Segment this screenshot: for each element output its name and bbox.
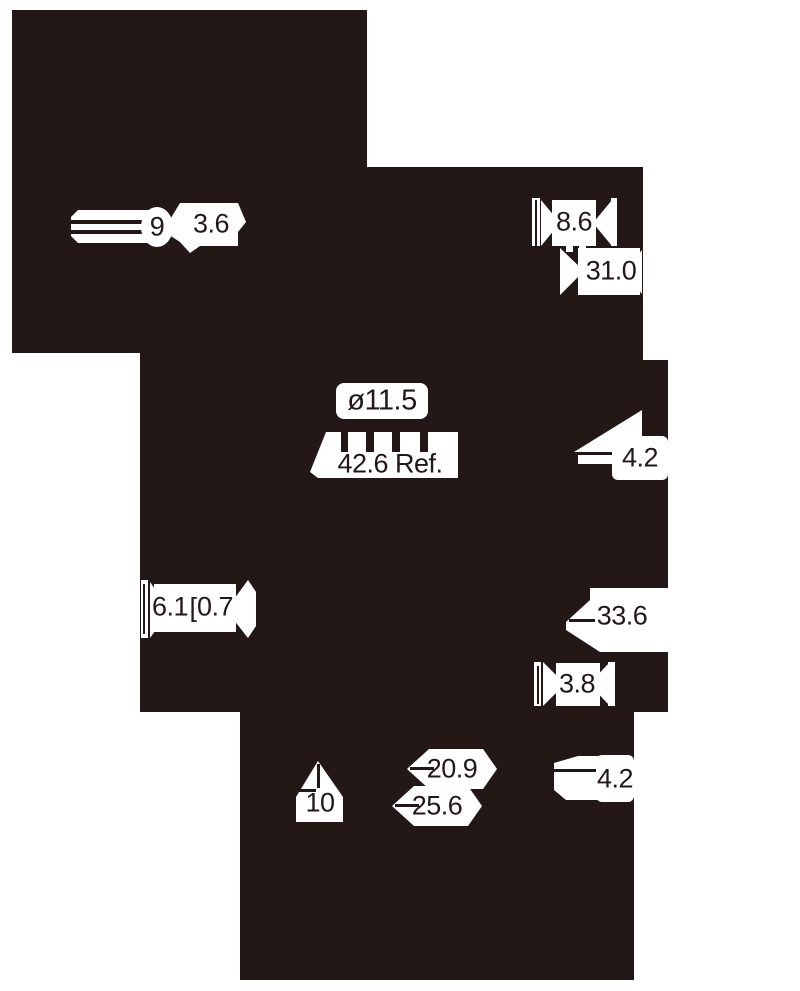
dimension-line <box>554 769 602 772</box>
dim-pin-diameter: 3.6 <box>193 211 229 238</box>
dim-shaft-diameter: 3.8 <box>559 671 595 698</box>
arrow-shaft-line <box>317 764 320 788</box>
dim-body-diameter: ø11.5 <box>347 387 417 416</box>
extension-line <box>537 666 539 704</box>
dim-overall-length: 42.6 Ref. <box>337 451 442 478</box>
extension-line <box>535 200 537 246</box>
dim-left-bracket: [ <box>189 595 196 622</box>
dim-base-height: 10 <box>305 790 334 817</box>
drawing-silhouette <box>12 10 668 980</box>
dim-tip-length: 4.2 <box>597 766 633 793</box>
drawing-canvas <box>0 0 800 991</box>
dim-left-gap: 6.1 <box>152 594 188 621</box>
dim-plug-length: 31.0 <box>586 258 637 285</box>
halo-shape <box>554 756 602 800</box>
dim-left-offset: 0.7 <box>197 594 233 621</box>
dim-pin-length: 9 <box>150 214 165 241</box>
drawing-page: 9 3.6 8.6 31.0 ø11.5 42.6 Ref. 4.2 6.1 [… <box>0 0 800 991</box>
extension-line-halo <box>611 198 617 246</box>
extension-line <box>143 584 145 634</box>
dim-inner-width: 20.9 <box>427 756 478 783</box>
dim-outer-width: 25.6 <box>412 793 463 820</box>
dim-plug-width: 8.6 <box>556 209 592 236</box>
dim-shaft-length: 33.6 <box>597 603 648 630</box>
extension-line-halo <box>608 662 615 706</box>
dim-taper-length: 4.2 <box>622 445 658 472</box>
leader-line <box>569 619 595 622</box>
